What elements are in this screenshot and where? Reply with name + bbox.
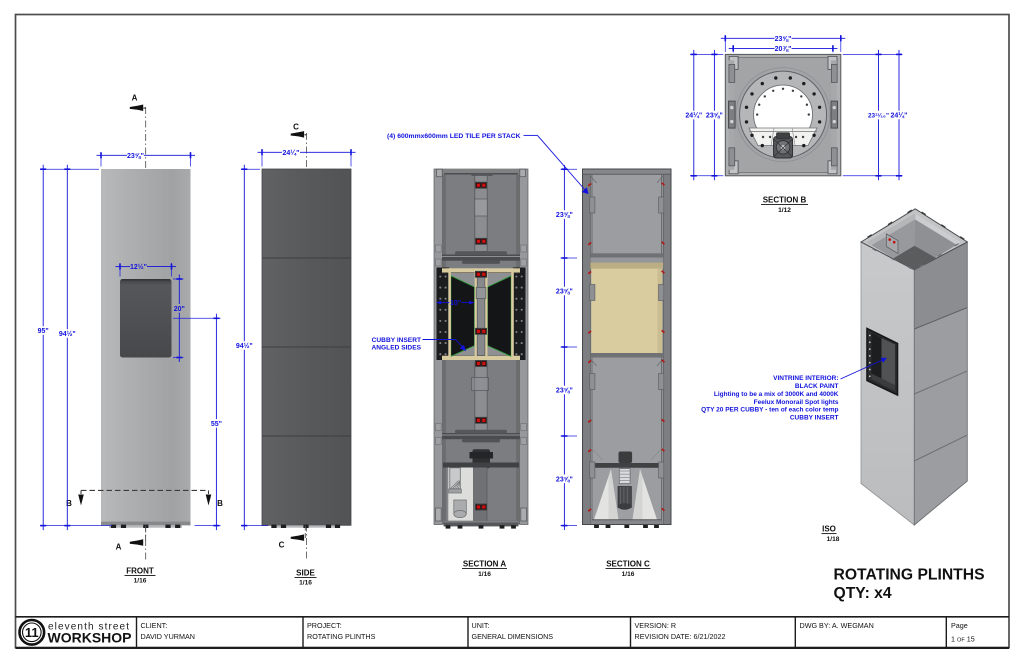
svg-text:23⅝": 23⅝" — [127, 153, 144, 160]
svg-text:23⅝": 23⅝" — [775, 36, 792, 43]
svg-text:11: 11 — [25, 625, 39, 640]
svg-text:ROTATING PLINTHS: ROTATING PLINTHS — [307, 632, 376, 641]
svg-text:20": 20" — [174, 306, 185, 313]
svg-text:23⅝": 23⅝" — [556, 476, 573, 483]
svg-text:A: A — [132, 94, 138, 103]
svg-text:(4) 600mmx600mm LED TILE PER S: (4) 600mmx600mm LED TILE PER STACK — [387, 133, 521, 140]
svg-text:REVISION DATE: 6/21/2022: REVISION DATE: 6/21/2022 — [635, 632, 726, 641]
svg-text:CLIENT:: CLIENT: — [141, 621, 168, 630]
svg-text:BLACK PAINT: BLACK PAINT — [795, 383, 839, 390]
svg-text:DWG BY: A. WEGMAN: DWG BY: A. WEGMAN — [800, 621, 874, 630]
svg-text:VERSION: R: VERSION: R — [635, 621, 677, 630]
svg-text:55": 55" — [211, 421, 222, 428]
svg-text:A: A — [116, 543, 122, 552]
svg-text:94½": 94½" — [59, 330, 76, 338]
svg-text:1/16: 1/16 — [478, 571, 491, 578]
svg-text:ANGLED SIDES: ANGLED SIDES — [372, 345, 422, 352]
svg-text:SIDE: SIDE — [296, 569, 315, 578]
svg-text:23⅝": 23⅝" — [556, 289, 573, 296]
svg-text:1/16: 1/16 — [134, 578, 147, 585]
svg-text:SECTION A: SECTION A — [463, 560, 506, 569]
svg-text:GENERAL DIMENSIONS: GENERAL DIMENSIONS — [472, 632, 554, 641]
svg-text:VINTRINE INTERIOR:: VINTRINE INTERIOR: — [773, 375, 838, 382]
svg-text:94½": 94½" — [236, 342, 253, 350]
svg-text:12½": 12½" — [130, 263, 147, 271]
svg-text:24¼": 24¼" — [283, 149, 300, 157]
svg-text:1/18: 1/18 — [827, 536, 840, 543]
svg-text:UNIT:: UNIT: — [472, 621, 490, 630]
svg-text:PROJECT:: PROJECT: — [307, 621, 342, 630]
svg-text:QTY: x4: QTY: x4 — [834, 585, 892, 602]
svg-text:CUBBY INSERT: CUBBY INSERT — [372, 337, 421, 344]
svg-text:24¼": 24¼" — [685, 112, 702, 120]
svg-text:1/16: 1/16 — [299, 580, 312, 587]
svg-text:Feelux Monorail Spot lights: Feelux Monorail Spot lights — [754, 399, 839, 406]
svg-text:QTY 20 PER CUBBY - ten of each: QTY 20 PER CUBBY - ten of each color tem… — [701, 407, 838, 414]
svg-text:95": 95" — [38, 328, 49, 335]
svg-text:SECTION B: SECTION B — [763, 195, 807, 204]
svg-text:ROTATING PLINTHS: ROTATING PLINTHS — [834, 567, 985, 584]
svg-text:1/12: 1/12 — [778, 207, 791, 214]
svg-text:24¼": 24¼" — [891, 112, 908, 120]
svg-text:C: C — [293, 123, 299, 132]
svg-text:CUBBY INSERT: CUBBY INSERT — [790, 414, 839, 421]
svg-text:FRONT: FRONT — [126, 567, 154, 576]
svg-text:Page: Page — [951, 621, 968, 630]
svg-text:23⅝": 23⅝" — [706, 113, 723, 120]
svg-text:1/16: 1/16 — [622, 571, 635, 578]
svg-text:C: C — [279, 541, 285, 550]
svg-text:23⅝": 23⅝" — [556, 388, 573, 395]
svg-text:ISO: ISO — [822, 525, 836, 534]
svg-text:10": 10" — [450, 300, 461, 307]
svg-text:DAVID YURMAN: DAVID YURMAN — [141, 632, 195, 641]
svg-text:23⅝": 23⅝" — [556, 212, 573, 219]
svg-text:WORKSHOP: WORKSHOP — [48, 630, 132, 646]
svg-text:Lighting to be a mix of 3000K: Lighting to be a mix of 3000K and 4000K — [714, 391, 839, 398]
svg-text:20⅞": 20⅞" — [775, 46, 792, 53]
svg-text:SECTION C: SECTION C — [606, 560, 650, 569]
svg-text:B: B — [217, 499, 223, 508]
svg-text:23¹¹⁄₁₆": 23¹¹⁄₁₆" — [868, 113, 889, 120]
